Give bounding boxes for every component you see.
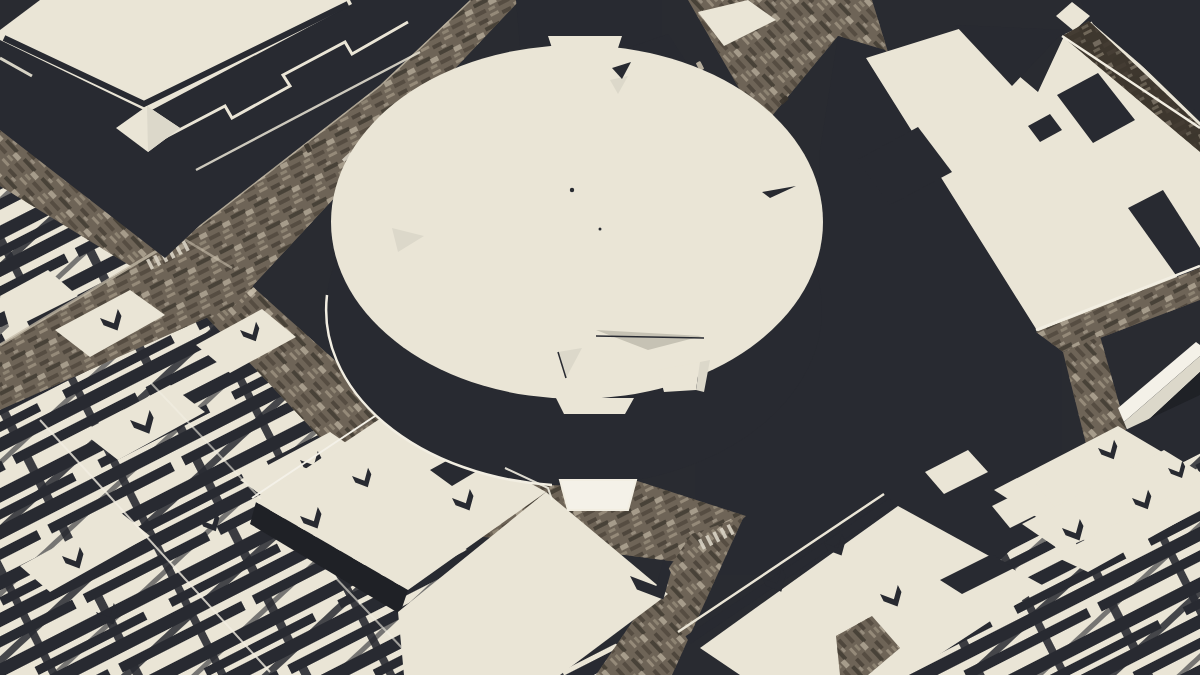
arena-roof-tab xyxy=(548,36,622,54)
arena-roof-speck-2 xyxy=(599,228,602,231)
arena-entry-lower xyxy=(560,480,636,510)
map-canvas xyxy=(0,0,1200,675)
arena-roof xyxy=(331,45,823,399)
arena-entry-upper xyxy=(556,398,634,414)
scene-root xyxy=(0,0,1200,675)
map-3d-view[interactable] xyxy=(0,0,1200,675)
arena-roof-speck-1 xyxy=(570,188,574,192)
